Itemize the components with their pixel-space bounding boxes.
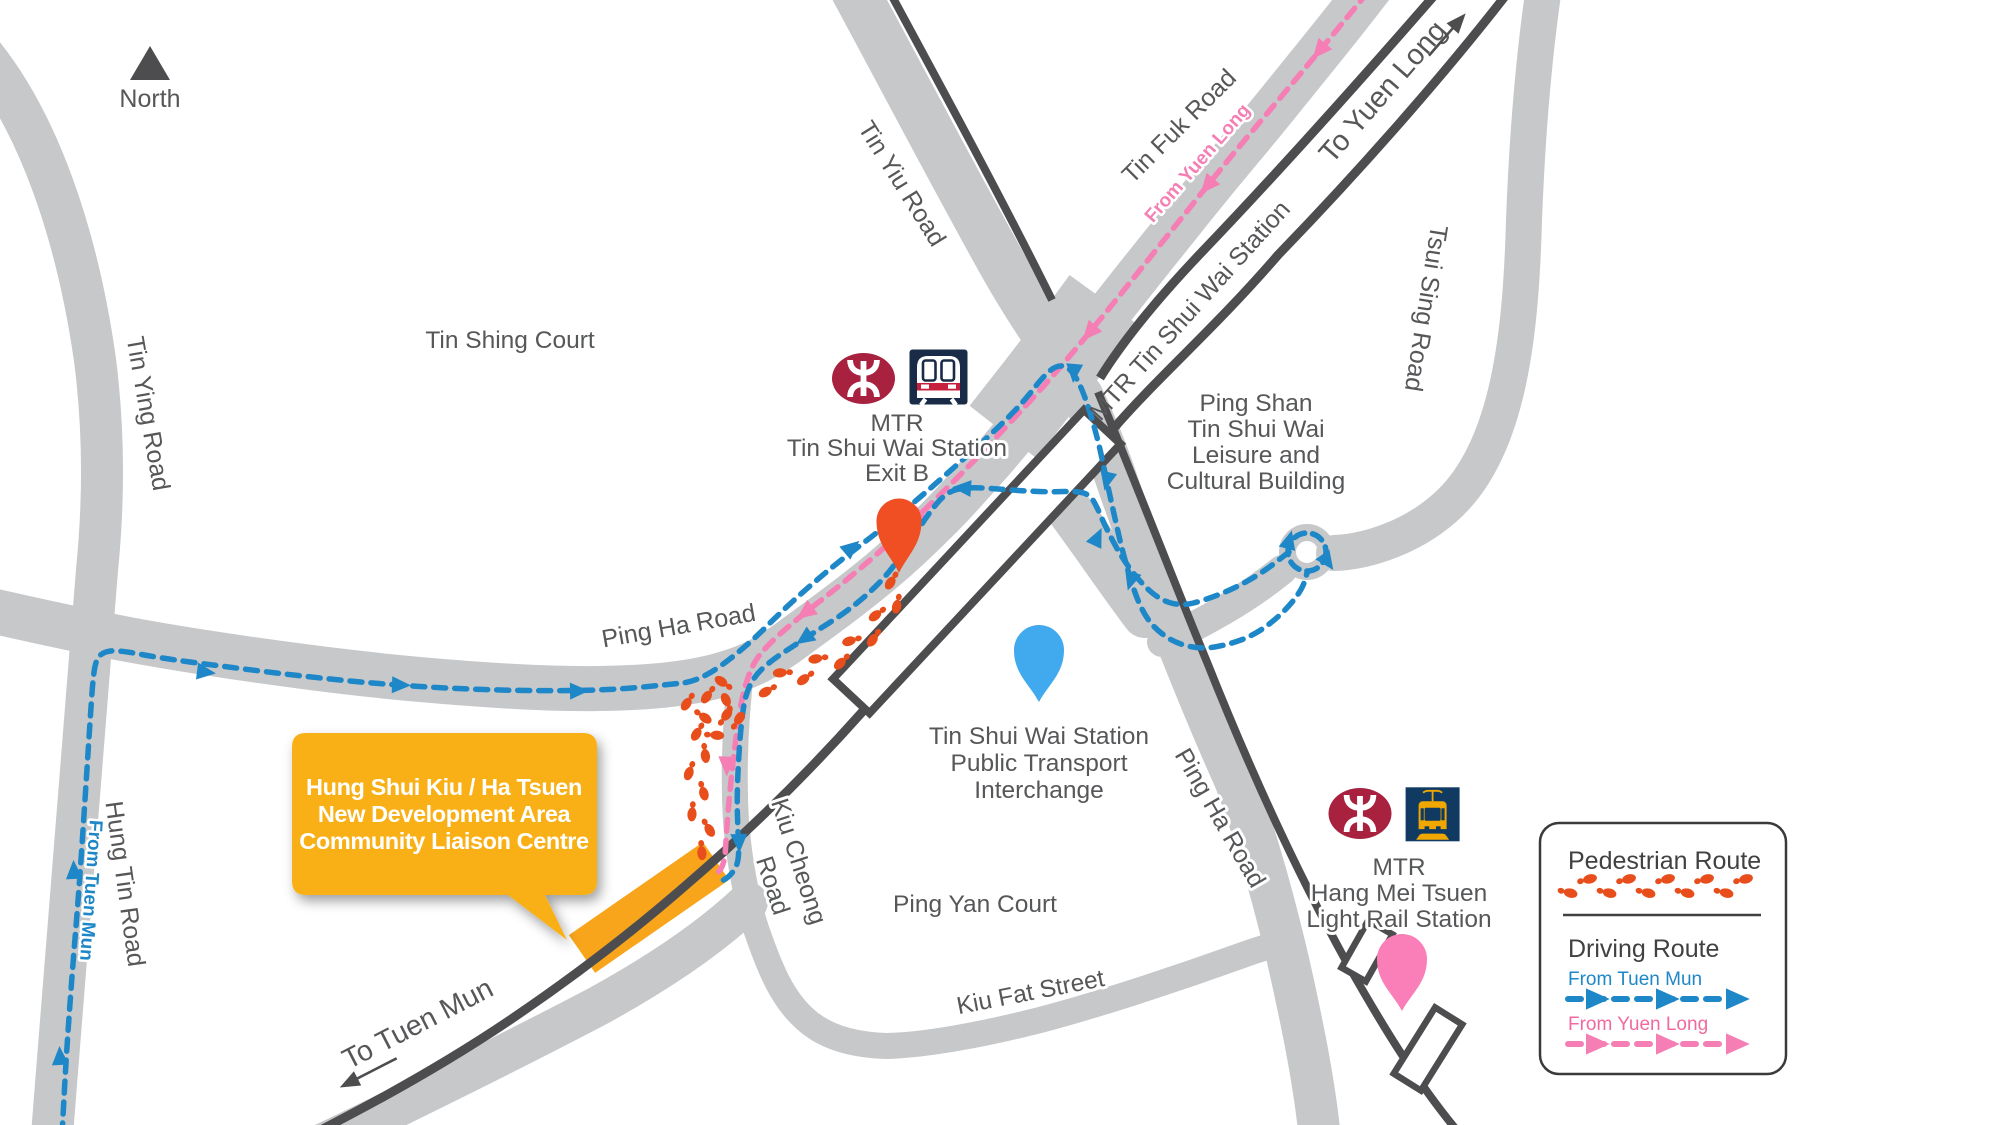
svg-text:From Tuen Mun: From Tuen Mun <box>1568 969 1702 990</box>
svg-text:North: North <box>119 85 180 113</box>
svg-text:Public Transport: Public Transport <box>950 750 1127 777</box>
svg-text:MTR: MTR <box>870 410 923 437</box>
svg-text:Tin Shui Wai Station: Tin Shui Wai Station <box>787 435 1007 462</box>
svg-text:Tin Shui Wai: Tin Shui Wai <box>1187 416 1324 443</box>
svg-text:Cultural Building: Cultural Building <box>1167 468 1345 495</box>
svg-text:Hung Shui Kiu / Ha Tsuen: Hung Shui Kiu / Ha Tsuen <box>306 774 582 800</box>
svg-text:Interchange: Interchange <box>974 777 1103 804</box>
svg-text:Ping Shan: Ping Shan <box>1199 390 1312 417</box>
svg-text:Ping Yan Court: Ping Yan Court <box>893 891 1057 918</box>
svg-text:Hang Mei Tsuen: Hang Mei Tsuen <box>1311 880 1488 907</box>
svg-text:From Yuen Long: From Yuen Long <box>1568 1014 1708 1035</box>
svg-text:Pedestrian Route: Pedestrian Route <box>1568 847 1761 875</box>
svg-text:Community Liaison Centre: Community Liaison Centre <box>299 828 589 854</box>
svg-text:Light Rail Station: Light Rail Station <box>1306 906 1491 933</box>
svg-text:Driving Route: Driving Route <box>1568 935 1719 963</box>
svg-text:Tin Shing Court: Tin Shing Court <box>425 327 595 354</box>
svg-text:Leisure and: Leisure and <box>1192 442 1320 469</box>
svg-text:MTR: MTR <box>1372 854 1425 881</box>
svg-text:Tin Shui Wai Station: Tin Shui Wai Station <box>929 723 1149 750</box>
svg-text:Exit B: Exit B <box>865 460 929 487</box>
svg-text:New Development Area: New Development Area <box>318 801 572 827</box>
